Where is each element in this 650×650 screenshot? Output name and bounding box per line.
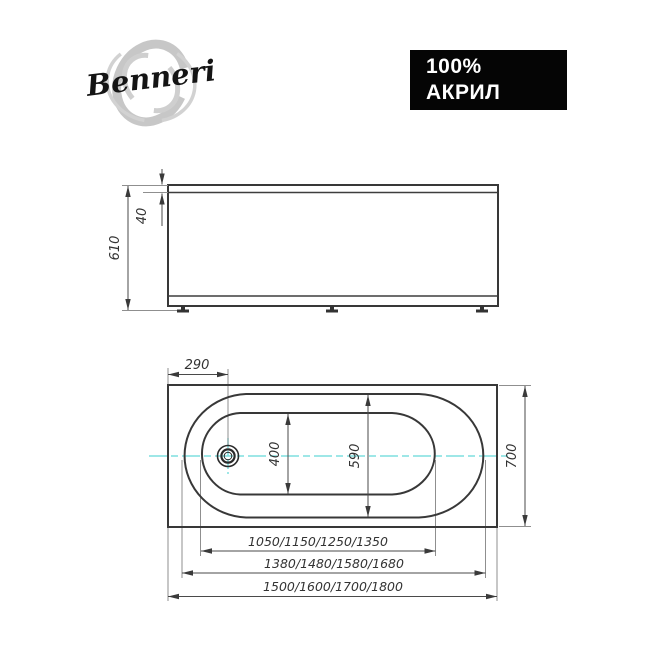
dim-label-40: 40 xyxy=(135,208,150,225)
dim-rim-height: 40 xyxy=(135,169,168,226)
dim-bottom-length-options: 1050/1150/1250/1350 xyxy=(201,534,436,551)
dim-label-700: 700 xyxy=(505,444,520,469)
bathtub-spec-sheet: Benneri 610 xyxy=(0,0,650,650)
side-view-drawing: 610 40 xyxy=(108,169,498,313)
dim-rim-length-options: 1380/1480/1580/1680 xyxy=(182,556,486,573)
dim-bottom-width: 400 xyxy=(268,414,288,494)
badge-line1: 100% xyxy=(426,54,567,80)
dim-overall-length-options: 1500/1600/1700/1800 xyxy=(168,579,497,597)
badge-line2: АКРИЛ xyxy=(426,80,567,106)
dim-label-bottom-lengths: 1050/1150/1250/1350 xyxy=(248,534,388,549)
dim-label-610: 610 xyxy=(108,236,123,261)
dim-label-290: 290 xyxy=(185,358,210,373)
acrylic-badge: 100% АКРИЛ xyxy=(410,50,567,110)
dim-label-400: 400 xyxy=(268,442,283,467)
tub-bottom-outline xyxy=(202,413,435,495)
side-panel-outline xyxy=(168,185,498,306)
brand-name: Benneri xyxy=(83,53,217,103)
dim-label-590: 590 xyxy=(348,444,363,469)
dim-drain-offset: 290 xyxy=(168,358,228,375)
dim-side-height: 610 xyxy=(108,186,177,311)
dim-label-overall-lengths: 1500/1600/1700/1800 xyxy=(263,579,403,594)
brand-logo: Benneri xyxy=(83,33,217,133)
dim-label-rim-lengths: 1380/1480/1580/1680 xyxy=(264,556,404,571)
top-view-drawing: 290 400 590 700 1050/1150/ xyxy=(149,358,531,601)
